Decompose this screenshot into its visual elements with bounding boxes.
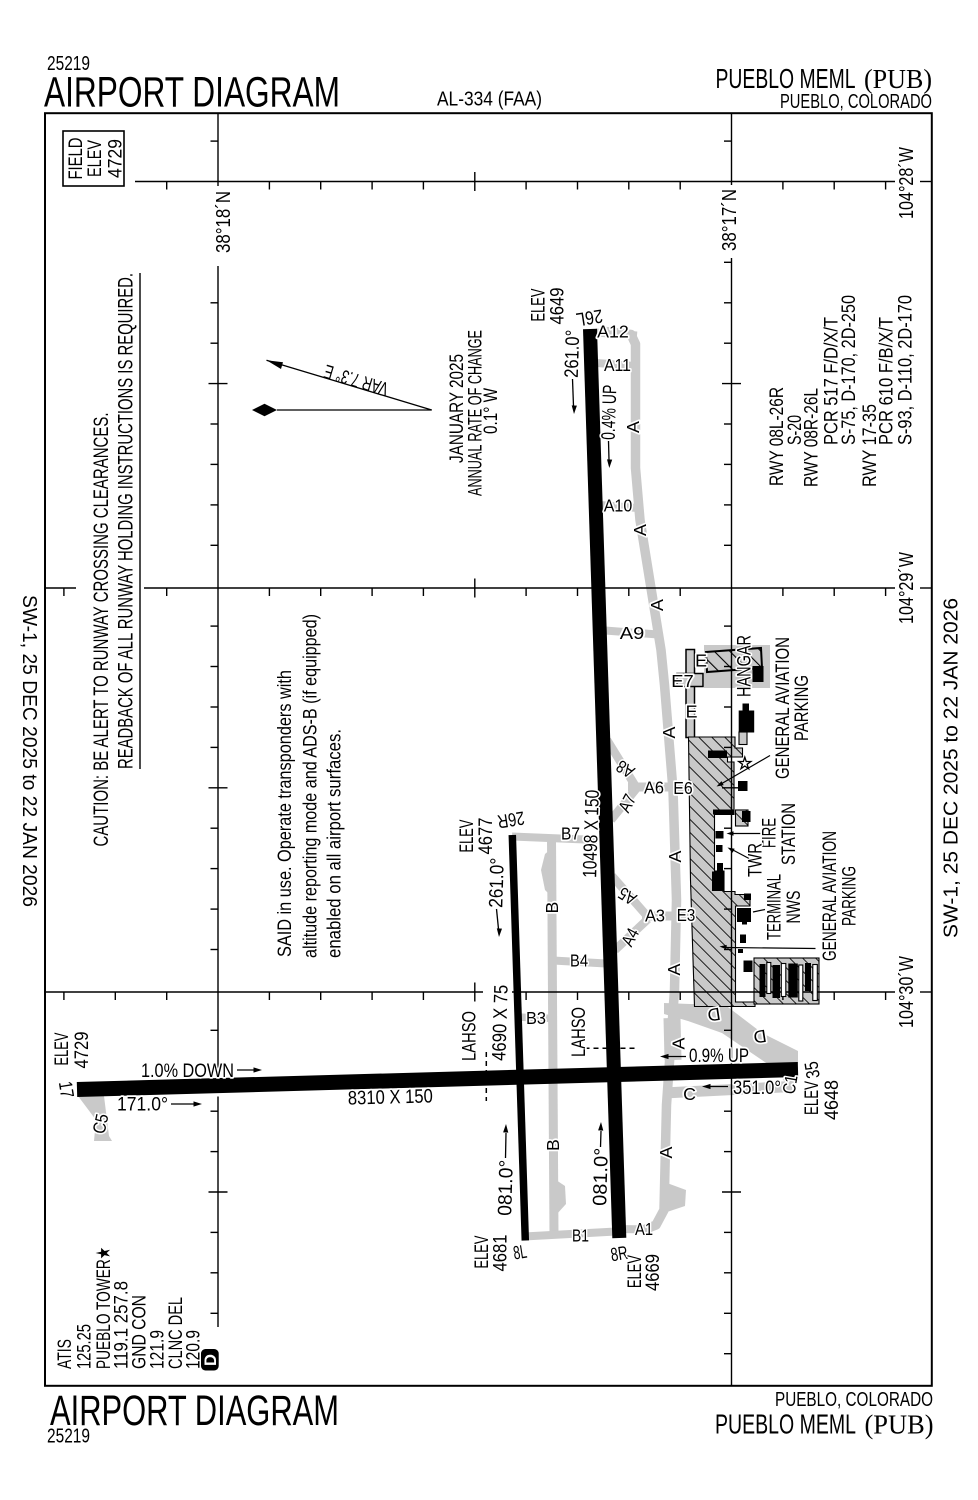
svg-text:RWY 08R-26L: RWY 08R-26L [801, 388, 823, 487]
svg-text:E3: E3 [677, 905, 696, 925]
svg-text:(PUB): (PUB) [865, 1409, 934, 1440]
svg-text:B3: B3 [526, 1008, 546, 1028]
svg-text:A1: A1 [635, 1219, 653, 1239]
svg-text:4729: 4729 [71, 1032, 93, 1069]
svg-text:35: 35 [801, 1060, 824, 1080]
svg-text:E: E [686, 702, 698, 722]
svg-text:0.4% UP: 0.4% UP [598, 384, 622, 440]
svg-text:104°30´W: 104°30´W [895, 955, 918, 1028]
svg-text:TWR: TWR [745, 843, 767, 877]
svg-text:38°17´N: 38°17´N [718, 189, 741, 251]
svg-text:C5: C5 [89, 1112, 113, 1136]
svg-text:A: A [669, 1037, 689, 1049]
svg-text:4690 X 75: 4690 X 75 [488, 984, 512, 1061]
svg-text:HANGAR: HANGAR [734, 635, 756, 697]
svg-text:17: 17 [54, 1080, 77, 1100]
svg-text:104°29´W: 104°29´W [895, 551, 918, 624]
svg-text:LAHSO: LAHSO [459, 1011, 481, 1061]
svg-text:8310 X 150: 8310 X 150 [348, 1085, 434, 1109]
svg-text:SAID in use. Operate transpon: SAID in use. Operate transponders with [275, 670, 296, 957]
svg-text:enabled on all airport surface: enabled on all airport surfaces. [325, 729, 346, 958]
svg-text:LAHSO: LAHSO [568, 1007, 590, 1057]
svg-text:4649: 4649 [546, 288, 568, 325]
svg-text:4648: 4648 [821, 1080, 843, 1120]
svg-text:C: C [683, 1084, 696, 1104]
svg-text:S-93, D-110, 2D-170: S-93, D-110, 2D-170 [895, 295, 917, 445]
svg-text:A11: A11 [604, 355, 631, 375]
svg-text:26R: 26R [496, 806, 526, 831]
svg-text:(PUB): (PUB) [864, 63, 932, 94]
svg-text:C1: C1 [779, 1073, 802, 1095]
svg-text:351.0°: 351.0° [733, 1077, 781, 1099]
svg-text:B: B [543, 1139, 563, 1151]
svg-text:STATION: STATION [778, 803, 800, 865]
svg-text:B1: B1 [572, 1226, 589, 1246]
svg-text:CAUTION: BE ALERT TO RUNWAY CR: CAUTION: BE ALERT TO RUNWAY CROSSING CLE… [90, 413, 113, 847]
svg-text:A: A [647, 599, 667, 611]
svg-text:0.9% UP: 0.9% UP [689, 1045, 749, 1067]
svg-text:AL-334 (FAA): AL-334 (FAA) [437, 89, 542, 111]
svg-text:E7: E7 [671, 671, 694, 691]
svg-text:NWS: NWS [783, 891, 805, 924]
svg-text:A: A [665, 850, 685, 862]
svg-text:A6: A6 [644, 778, 664, 798]
svg-text:AIRPORT DIAGRAM: AIRPORT DIAGRAM [50, 1388, 339, 1435]
svg-text:D: D [202, 1354, 220, 1366]
svg-text:081.0°: 081.0° [494, 1159, 518, 1216]
svg-text:10498 X 150: 10498 X 150 [579, 789, 604, 878]
svg-text:A10: A10 [604, 496, 633, 516]
svg-text:ELEV: ELEV [84, 140, 106, 177]
svg-text:SW-1, 25 DEC 2025 to 22 JAN: SW-1, 25 DEC 2025 to 22 JAN 2026 [940, 598, 963, 938]
svg-text:38°18´N: 38°18´N [212, 191, 235, 253]
svg-text:B7: B7 [561, 824, 580, 844]
svg-text:S-75, D-170, 2D-250: S-75, D-170, 2D-250 [838, 295, 860, 445]
svg-text:A: A [623, 421, 643, 433]
svg-text:0.1° W: 0.1° W [480, 388, 502, 434]
svg-text:261.0°: 261.0° [561, 329, 584, 378]
svg-text:PUEBLO MEML: PUEBLO MEML [715, 1409, 856, 1440]
svg-text:4681: 4681 [490, 1235, 512, 1272]
svg-text:B: B [542, 902, 562, 914]
svg-text:PARKING: PARKING [839, 866, 861, 926]
svg-text:altitude reporting mode and AD: altitude reporting mode and ADS-B (if eq… [301, 614, 322, 958]
svg-text:A: A [659, 726, 679, 738]
svg-text:A9: A9 [620, 623, 645, 643]
svg-text:PARKING: PARKING [791, 675, 813, 741]
svg-text:A3: A3 [645, 906, 665, 926]
svg-text:E: E [695, 651, 707, 671]
svg-text:A: A [630, 524, 650, 536]
svg-text:READBACK OF ALL RUNWAY HOLDING: READBACK OF ALL RUNWAY HOLDING INSTRUCTI… [115, 273, 138, 769]
svg-text:PUEBLO, COLORADO: PUEBLO, COLORADO [780, 91, 932, 113]
svg-text:A12: A12 [597, 321, 629, 341]
svg-text:ELEV: ELEV [801, 1081, 823, 1115]
svg-text:171.0°: 171.0° [117, 1094, 168, 1116]
svg-text:4669: 4669 [642, 1254, 664, 1291]
svg-text:A: A [664, 963, 684, 975]
svg-text:4677: 4677 [475, 818, 497, 855]
svg-text:AIRPORT DIAGRAM: AIRPORT DIAGRAM [44, 70, 340, 117]
svg-text:081.0°: 081.0° [589, 1147, 613, 1206]
svg-text:B4: B4 [570, 951, 588, 971]
svg-text:E6: E6 [673, 778, 693, 798]
svg-text:PUEBLO MEML: PUEBLO MEML [716, 63, 856, 94]
svg-text:ELEV: ELEV [51, 1033, 73, 1066]
svg-text:4729: 4729 [105, 139, 127, 178]
svg-text:104°28´W: 104°28´W [895, 146, 918, 219]
svg-text:25219: 25219 [47, 1425, 90, 1448]
svg-text:1.0% DOWN: 1.0% DOWN [141, 1060, 234, 1082]
svg-text:SW-1, 25 DEC 2025 to 22 JAN: SW-1, 25 DEC 2025 to 22 JAN 2026 [18, 595, 41, 907]
svg-text:A: A [656, 1146, 676, 1158]
svg-text:261.0°: 261.0° [485, 857, 509, 908]
